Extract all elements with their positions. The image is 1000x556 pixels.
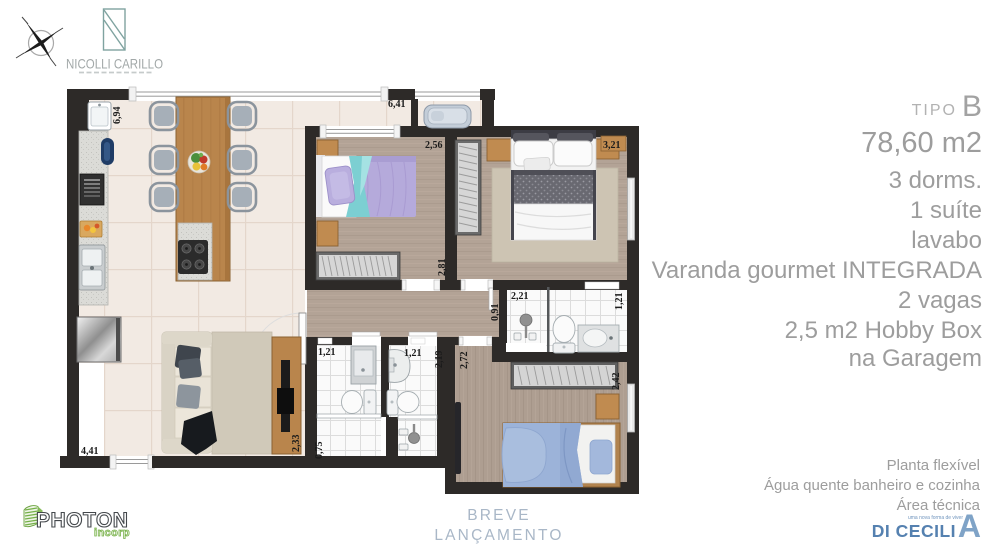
svg-text:Planta flexível: Planta flexível: [887, 457, 980, 474]
svg-text:lavabo: lavabo: [911, 227, 982, 254]
svg-text:0,75: 0,75: [314, 442, 325, 460]
svg-text:2,19: 2,19: [434, 351, 445, 369]
svg-text:2,72: 2,72: [459, 352, 470, 370]
svg-text:1,21: 1,21: [614, 293, 625, 311]
svg-text:6,94: 6,94: [112, 107, 123, 125]
svg-text:LANÇAMENTO: LANÇAMENTO: [434, 527, 563, 544]
svg-text:2,33: 2,33: [291, 435, 302, 453]
svg-text:2,21: 2,21: [511, 291, 529, 302]
svg-text:3,21: 3,21: [603, 140, 621, 151]
svg-text:NICOLLI CARILLO: NICOLLI CARILLO: [66, 56, 163, 72]
svg-text:Água quente banheiro e cozinha: Água quente banheiro e cozinha: [764, 477, 981, 494]
svg-text:1,21: 1,21: [404, 348, 422, 359]
svg-text:TIPO: TIPO: [912, 102, 957, 119]
svg-text:B: B: [962, 90, 982, 123]
svg-text:2 vagas: 2 vagas: [898, 287, 982, 314]
svg-text:4,41: 4,41: [81, 446, 99, 457]
svg-text:BREVE: BREVE: [467, 507, 531, 524]
svg-text:2,5 m2 Hobby Box: 2,5 m2 Hobby Box: [785, 317, 982, 344]
svg-text:2,81: 2,81: [437, 259, 448, 277]
svg-text:Área técnica: Área técnica: [897, 497, 981, 514]
svg-text:0,91: 0,91: [490, 304, 501, 322]
svg-text:1,21: 1,21: [318, 347, 336, 358]
svg-text:Varanda gourmet INTEGRADA: Varanda gourmet INTEGRADA: [652, 257, 982, 284]
svg-text:2,42: 2,42: [611, 373, 622, 391]
svg-text:1 suíte: 1 suíte: [910, 197, 982, 224]
svg-text:78,60 m2: 78,60 m2: [861, 127, 982, 159]
svg-text:3 dorms.: 3 dorms.: [889, 167, 982, 194]
svg-text:2,56: 2,56: [425, 140, 443, 151]
svg-text:DI CECILI: DI CECILI: [872, 521, 956, 541]
svg-text:incorp: incorp: [94, 527, 130, 539]
svg-text:na Garagem: na Garagem: [849, 345, 982, 372]
svg-text:6,41: 6,41: [388, 99, 406, 110]
